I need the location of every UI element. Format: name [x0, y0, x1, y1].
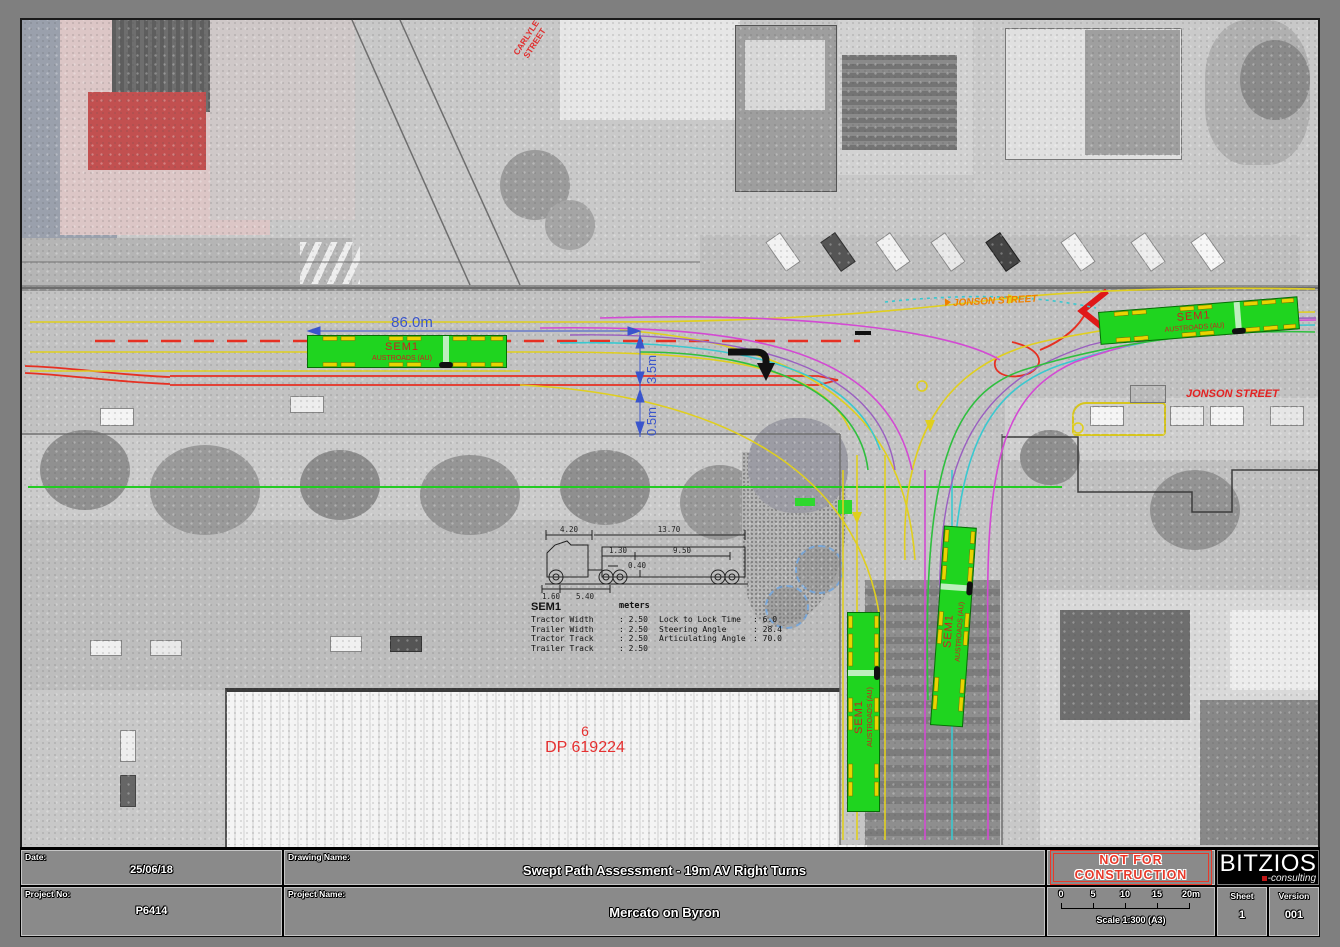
scale-tick-20: 20m: [1182, 889, 1200, 899]
version-value: 001: [1269, 909, 1319, 921]
spec-units: meters: [619, 601, 650, 611]
date-value: 25/06/18: [21, 864, 282, 876]
spec-name: SEM1: [531, 601, 561, 613]
crosswalk: [300, 242, 360, 284]
title-block-project-no-cell: Project No: P6414: [20, 886, 283, 937]
stamp-line2: CONSTRUCTION: [1075, 868, 1188, 882]
aerial-building: [1085, 30, 1180, 155]
aerial-road-median: [22, 285, 1318, 291]
date-label: Date:: [25, 852, 46, 862]
version-cell: Version 001: [1268, 886, 1320, 937]
parked-car: [120, 775, 136, 807]
sheet-value: 1: [1217, 909, 1267, 921]
parked-car: [120, 730, 136, 762]
project-no-label: Project No:: [25, 889, 70, 899]
street-label-jonson-right: JONSON STREET: [1186, 388, 1279, 400]
title-block-date-cell: Date: 25/06/18: [20, 849, 283, 886]
aerial-tree: [150, 445, 260, 535]
aerial-warehouse-roof: [225, 688, 867, 849]
aerial-solar-roof: [842, 55, 957, 150]
title-block: Date: 25/06/18 Project No: P6414 Drawing…: [20, 847, 1320, 935]
aerial-tree: [748, 418, 848, 513]
project-no-value: P6414: [21, 905, 282, 917]
drawing-name-value: Swept Path Assessment - 19m AV Right Tur…: [284, 863, 1045, 878]
parked-car: [90, 640, 122, 656]
street-label-arrow-icon: [945, 298, 951, 306]
sheet-cell: Sheet 1: [1216, 886, 1268, 937]
parked-car: [100, 408, 134, 426]
aerial-tree: [420, 455, 520, 535]
parked-car: [1130, 385, 1166, 403]
shrub-outline: [795, 545, 844, 594]
drawing-name-label: Drawing Name:: [288, 852, 350, 862]
scale-tick-15: 15: [1152, 889, 1162, 899]
parked-car: [1170, 406, 1204, 426]
aerial-building: [210, 20, 355, 220]
lot-number: 6: [505, 723, 665, 739]
aerial-tree: [40, 430, 130, 510]
aerial-tree: [545, 200, 595, 250]
aerial-roof: [1200, 700, 1318, 845]
logo-red-square-icon: [1262, 876, 1267, 881]
parked-car: [290, 396, 324, 413]
parked-car: [1090, 406, 1124, 426]
sheet-label: Sheet: [1217, 891, 1267, 901]
drawing-sheet-page: 86.0m 3.5m 0.5m: [0, 0, 1340, 947]
parked-car: [1270, 406, 1304, 426]
scale-tick-10: 10: [1120, 889, 1130, 899]
aerial-building: [1230, 610, 1318, 690]
parked-car: [150, 640, 182, 656]
scale-tick-5: 5: [1090, 889, 1095, 899]
title-block-drawing-name-cell: Drawing Name: Swept Path Assessment - 19…: [283, 849, 1046, 886]
parked-car: [330, 636, 362, 652]
aerial-tree: [300, 450, 380, 520]
project-name-value: Mercato on Byron: [284, 905, 1045, 920]
lot-plan: DP 619224: [505, 739, 665, 757]
scale-tick-0: 0: [1058, 889, 1063, 899]
stamp-border: NOT FOR CONSTRUCTION: [1053, 853, 1209, 882]
version-label: Version: [1269, 891, 1319, 901]
vehicle-spec-table: SEM1 meters Tractor Width Trailer Width …: [531, 601, 781, 655]
not-for-construction-stamp: NOT FOR CONSTRUCTION: [1046, 849, 1216, 886]
parked-car: [390, 636, 422, 652]
aerial-building: [560, 20, 740, 120]
bitzios-logo: BITZIOS -consulting: [1216, 849, 1320, 886]
title-block-project-name-cell: Project Name: Mercato on Byron: [283, 886, 1046, 937]
logo-subtext: -consulting: [1262, 873, 1316, 884]
aerial-tree: [1020, 430, 1080, 485]
scale-bar-cell: 0 5 10 15 20m Scale 1:300 (A3): [1046, 886, 1216, 937]
project-name-label: Project Name:: [288, 889, 345, 899]
parked-car: [1210, 406, 1244, 426]
aerial-tree: [1150, 470, 1240, 550]
aerial-building: [745, 40, 825, 110]
scale-text: Scale 1:300 (A3): [1047, 915, 1215, 925]
stamp-line1: NOT FOR: [1099, 853, 1162, 867]
aerial-red-roof: [88, 92, 206, 170]
aerial-roof: [1060, 610, 1190, 720]
aerial-dark-yard: [865, 580, 1000, 845]
lot-label: 6 DP 619224: [505, 723, 665, 757]
aerial-tree: [560, 450, 650, 525]
aerial-tree: [1240, 40, 1310, 120]
